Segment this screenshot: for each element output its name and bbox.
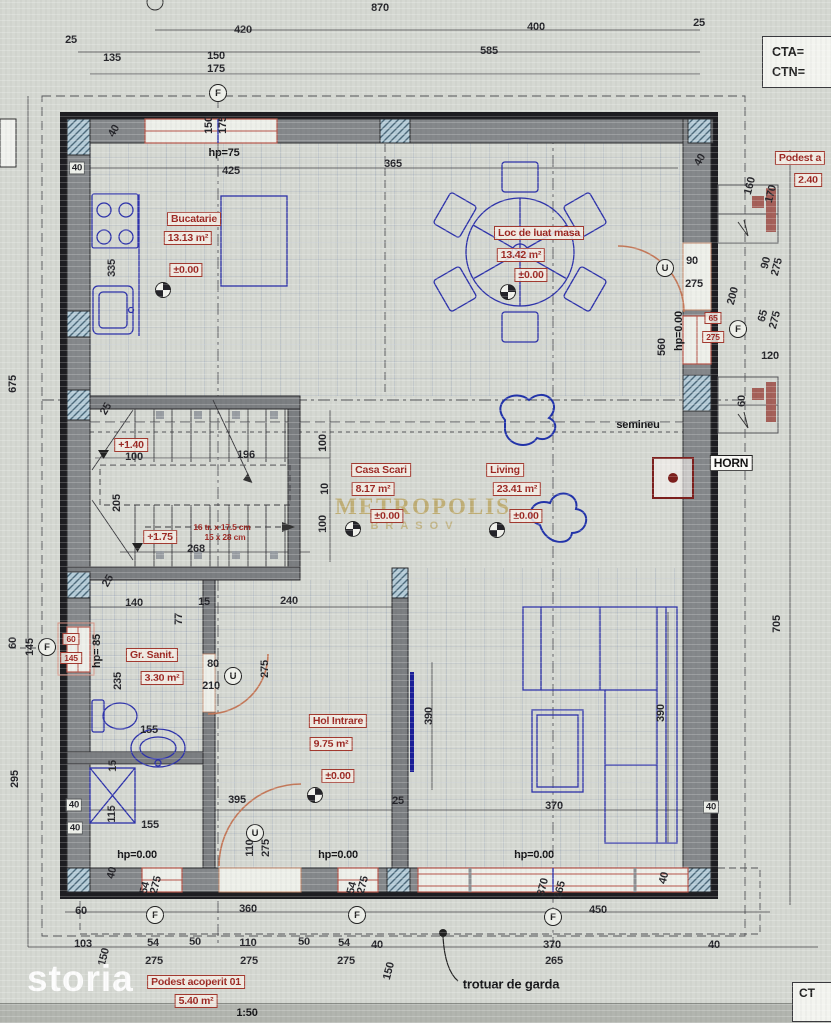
- floor-plan-screenshot: 8704204002525135150175585150175425365404…: [0, 0, 831, 1023]
- crosshair-layer: [0, 0, 831, 1023]
- ctn-label: CTN=: [772, 62, 831, 82]
- survey-crosshair-icon: [489, 522, 505, 538]
- survey-crosshair-icon: [500, 284, 516, 300]
- cta-ctn-box: CTA= CTN=: [762, 36, 831, 88]
- ct-corner-box: CT: [792, 982, 831, 1022]
- cta-label: CTA=: [772, 42, 831, 62]
- ct-label: CT: [799, 986, 815, 1000]
- survey-crosshair-icon: [155, 282, 171, 298]
- survey-crosshair-icon: [345, 521, 361, 537]
- survey-crosshair-icon: [307, 787, 323, 803]
- storia-watermark: storia: [27, 958, 134, 1000]
